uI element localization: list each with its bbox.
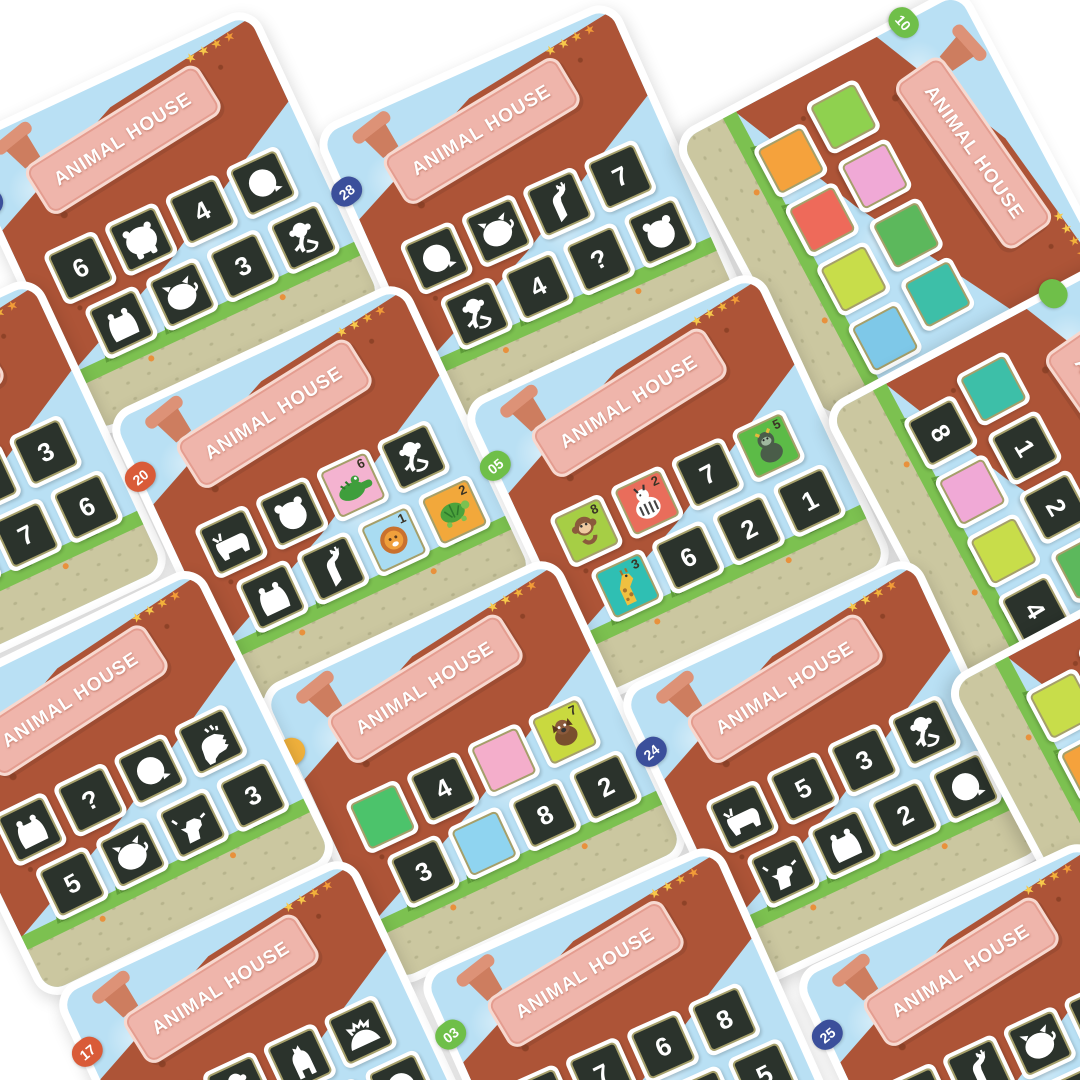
cell-face: 2 [1022, 473, 1080, 541]
number-cell: 3 [385, 833, 462, 910]
bear-silhouette-icon [264, 486, 320, 542]
cell-face [149, 261, 215, 327]
flower-dot-icon [62, 562, 70, 570]
cell-face [970, 517, 1038, 585]
cell-face: 5 [39, 850, 106, 917]
card-number: 05 [484, 455, 506, 477]
card-number: 25 [816, 1024, 838, 1046]
cell-face: 2 [716, 496, 782, 562]
cell-face: 3 [594, 553, 660, 619]
cell-face [99, 821, 166, 888]
cell-number: 1 [1008, 434, 1042, 462]
cell-number: 3 [410, 855, 437, 889]
cell-number: 2 [592, 770, 619, 804]
cell-face: 7 [0, 502, 59, 568]
cell-number: 8 [924, 419, 958, 447]
cell-face [159, 791, 226, 858]
number-cell: 6 [650, 519, 727, 596]
chick-silhouette-icon [235, 155, 291, 211]
cell-face [938, 458, 1006, 526]
hamster-silhouette-icon [244, 569, 300, 625]
giraffe-silhouette-icon [531, 176, 586, 231]
gorilla-icon [741, 418, 797, 474]
cell-face: 1 [361, 507, 427, 573]
hamster-silhouette-icon [93, 295, 149, 351]
cell-face [788, 186, 856, 254]
flower-dot-icon [821, 316, 829, 324]
flower-dot-icon [502, 346, 510, 354]
cell-number: 4 [524, 269, 551, 303]
pig-silhouette-icon [470, 203, 525, 258]
pig-silhouette-icon [154, 267, 210, 323]
flower-dot-icon [98, 915, 106, 923]
cell-number: ? [76, 783, 105, 818]
lion-icon [366, 512, 422, 568]
cell-face: 3 [210, 233, 276, 299]
silhouette-cell [144, 256, 221, 333]
cell-face: ? [566, 226, 632, 292]
cell-face [750, 839, 816, 905]
cell-face: 1 [776, 468, 842, 534]
giraffe-silhouette-icon [305, 541, 361, 597]
chick-silhouette-icon [938, 759, 994, 815]
cell-number: 6 [73, 490, 100, 524]
cell-number: 6 [67, 251, 94, 285]
cell-number: 5 [789, 772, 816, 806]
flower-dot-icon [581, 842, 589, 850]
flower-dot-icon [809, 904, 817, 912]
cell-number: 2 [1039, 493, 1073, 521]
cell-face [444, 281, 510, 347]
zebra-icon [619, 475, 675, 531]
card-number: 17 [76, 1041, 98, 1063]
cell-face: 8 [907, 399, 975, 467]
cell-face: 2 [421, 479, 487, 545]
cell-face [300, 535, 366, 601]
flower-dot-icon [449, 904, 457, 912]
number-cell: 3 [214, 757, 292, 835]
number-cell: 3 [204, 228, 281, 305]
card-number: 03 [439, 1024, 461, 1046]
bear-silhouette-icon [0, 452, 13, 508]
dino-silhouette-icon [183, 713, 239, 769]
giraffe-icon [599, 558, 655, 614]
chick-silhouette-icon [123, 743, 179, 799]
cell-face: 8 [512, 782, 578, 848]
cell-face [1060, 731, 1080, 799]
card-number: 10 [892, 11, 914, 33]
number-cell: 4 [500, 248, 577, 325]
silhouette-cell [745, 833, 822, 910]
cell-number: ? [585, 242, 613, 277]
silhouette-cell [438, 276, 515, 353]
cell-face [627, 199, 693, 265]
flower-dot-icon [971, 588, 979, 596]
flower-dot-icon [147, 355, 155, 363]
hedgehog-silhouette-icon [333, 1004, 389, 1060]
cell-number: 7 [607, 159, 634, 193]
cell-face [239, 564, 305, 630]
silhouette-cell [622, 194, 699, 271]
card-table-photo: ANIMAL HOUSE★★★★643ANIMAL HOUSE★★★★74?28… [0, 0, 1080, 1080]
cell-face [270, 205, 336, 271]
flower-dot-icon [785, 556, 793, 564]
silhouette-cell [295, 530, 372, 607]
turtle-icon [427, 484, 483, 540]
flower-dot-icon [941, 842, 949, 850]
cell-face [0, 796, 64, 863]
animal-tile: 3 [589, 547, 666, 624]
flower-dot-icon [753, 188, 761, 196]
goat-silhouette-icon [755, 844, 811, 900]
cell-number: 6 [674, 540, 701, 574]
hippo-silhouette-icon [113, 212, 169, 268]
cell-number: 3 [229, 249, 256, 283]
llama-silhouette-icon [272, 1032, 328, 1080]
flower-dot-icon [279, 293, 287, 301]
cell-number: 4 [188, 194, 215, 228]
cell-number: 7 [12, 518, 39, 552]
cell-face: 6 [655, 524, 721, 590]
bear-silhouette-icon [633, 204, 688, 259]
cell-number: 5 [58, 867, 86, 901]
goat-silhouette-icon [165, 797, 221, 853]
cell-face [88, 290, 154, 356]
number-cell: 2 [866, 777, 943, 854]
silhouette-cell [83, 284, 160, 361]
cell-number: 2 [891, 798, 918, 832]
croc-icon [325, 457, 381, 513]
cell-number: 7 [694, 457, 721, 491]
flower-dot-icon [903, 460, 911, 468]
animal-tile: 1 [355, 502, 432, 579]
cell-number: 6 [650, 1030, 677, 1064]
silhouette-cell [154, 786, 232, 864]
giraffe-silhouette-icon [951, 1044, 1007, 1080]
pig-silhouette-icon [104, 826, 160, 882]
cell-face [451, 810, 517, 876]
cell-face: 2 [572, 754, 638, 820]
cell-number: 1 [796, 484, 823, 518]
monkey-silhouette-icon [276, 210, 332, 266]
cell-face [1054, 533, 1080, 601]
cell-face: 4 [505, 254, 571, 320]
cell-number: 4 [429, 772, 456, 806]
cell-number: 3 [850, 743, 877, 777]
silhouette-cell [234, 558, 311, 635]
cell-number: 8 [531, 798, 558, 832]
cell-face: 2 [872, 782, 938, 848]
number-cell: 8 [506, 777, 583, 854]
cell-face: 3 [219, 762, 286, 829]
card-number: 20 [129, 466, 151, 488]
cell-face [757, 127, 825, 195]
silhouette-cell [806, 805, 883, 882]
number-cell: 5 [33, 845, 111, 923]
cell-face: 5 [731, 1042, 797, 1080]
monkey-icon [558, 503, 614, 559]
flower-dot-icon [430, 567, 438, 575]
goat-silhouette-icon [675, 1075, 730, 1080]
chick-silhouette-icon [409, 231, 464, 286]
cell-face: 3 [390, 839, 456, 905]
chick-silhouette-icon [374, 1059, 430, 1080]
card-number: 28 [335, 181, 357, 203]
cell-number: 3 [239, 778, 267, 812]
cell-face [820, 245, 888, 313]
hamster-silhouette-icon [2, 801, 58, 857]
flower-dot-icon [229, 851, 237, 859]
flower-dot-icon [653, 618, 661, 626]
silhouette-cell [94, 815, 172, 893]
animal-tile: 2 [416, 473, 493, 550]
cell-face [811, 810, 877, 876]
chick-silhouette-icon [1073, 987, 1080, 1043]
cell-number: 8 [711, 1002, 738, 1036]
color-tile [446, 805, 523, 882]
number-cell: ? [561, 221, 638, 298]
number-cell: 2 [567, 748, 644, 825]
monkey-silhouette-icon [897, 704, 953, 760]
flower-dot-icon [298, 629, 306, 637]
cow-silhouette-icon [714, 789, 770, 845]
pig-silhouette-icon [1012, 1015, 1068, 1071]
silhouette-cell [265, 199, 342, 276]
monkey-silhouette-icon [449, 286, 504, 341]
cell-face: 6 [53, 474, 119, 540]
card-number: 24 [640, 741, 662, 763]
cell-number: 7 [588, 1057, 615, 1080]
cow-silhouette-icon [203, 514, 259, 570]
cell-number: 4 [1018, 596, 1052, 624]
hamster-silhouette-icon [816, 816, 872, 872]
cell-face [368, 1054, 434, 1080]
flower-dot-icon [1025, 733, 1033, 741]
flower-dot-icon [634, 287, 642, 295]
dog-icon [537, 704, 593, 760]
cell-number: 5 [751, 1058, 778, 1080]
cell-face [1029, 672, 1080, 740]
monkey-silhouette-icon [386, 429, 442, 485]
number-cell: 2 [710, 491, 787, 568]
cell-number: 2 [735, 512, 762, 546]
number-cell: 6 [48, 468, 125, 545]
number-cell: 1 [771, 462, 848, 539]
cell-number: 3 [32, 435, 59, 469]
